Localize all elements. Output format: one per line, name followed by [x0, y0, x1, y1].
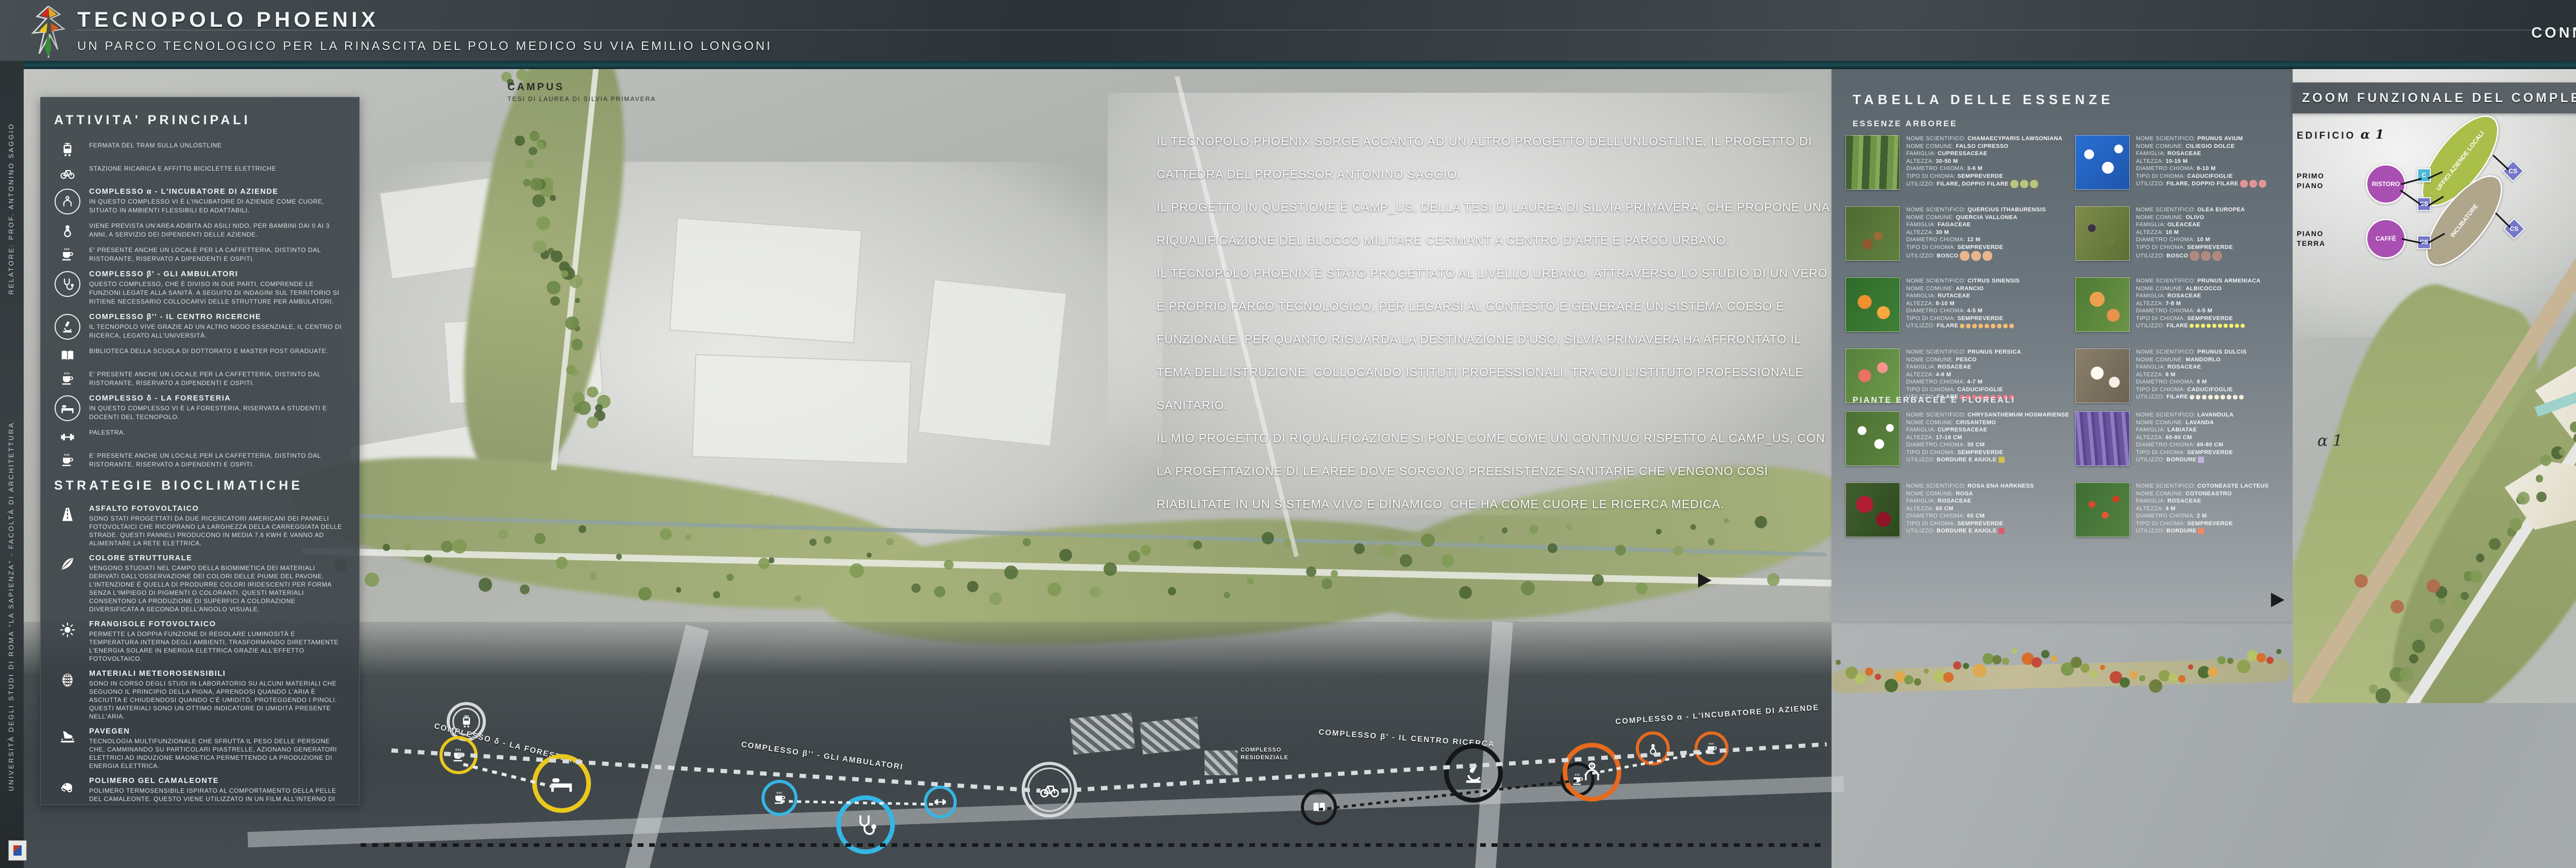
strip-tree — [2139, 675, 2145, 681]
essence-field-sci: NOME SCIENTIFICO: PRUNUS PERSICA — [1906, 348, 2021, 356]
strategy-heading: FRANGISOLE FOTOVOLTAICO — [89, 620, 346, 628]
essence-field-uti: UTILIZZO: FILARE — [2136, 322, 2261, 330]
essence-fields: NOME SCIENTIFICO: COTONEASTE LACTEUSNOME… — [2136, 482, 2268, 537]
usage-dot — [2218, 324, 2222, 328]
usage-dot — [2009, 324, 2014, 328]
plan-tree — [2540, 455, 2552, 466]
plan-tree — [2430, 619, 2444, 633]
usage-dot — [2241, 324, 2245, 328]
residential-hatch — [1070, 712, 1136, 755]
strip-tree — [2120, 677, 2130, 688]
strategy-heading: MATERIALI METEOROSENSIBILI — [89, 670, 346, 678]
essence-field-fam: FAMIGLIA: ROSACEAE — [2136, 363, 2247, 371]
essence-field-alt: ALTEZZA: 30-50 M — [1906, 158, 2062, 165]
strip-tree — [2100, 665, 2105, 670]
strategy-description: POLIMERO TERMOSENSIBILE ISPIRATO AL COMP… — [89, 787, 346, 805]
essence-fields: NOME SCIENTIFICO: CITRUS SINENSISNOME CO… — [1906, 277, 2020, 332]
campus-label-title: CAMPUS — [507, 81, 656, 93]
section-arrow-icon — [1698, 573, 1711, 588]
activity-description: E' PRESENTE ANCHE UN LOCALE PER LA CAFFE… — [89, 452, 346, 469]
usage-dot — [2207, 324, 2211, 328]
essence-field-fam: FAMIGLIA: CUPRESSACEAE — [1906, 426, 2069, 434]
strip-tree — [1963, 663, 1969, 669]
usage-dot — [2198, 457, 2204, 463]
tree — [533, 240, 546, 254]
pinecone-icon — [54, 670, 81, 688]
tree — [989, 592, 1002, 605]
usage-dot — [2259, 180, 2266, 188]
plant-photo — [1845, 411, 1900, 466]
essence-fields: NOME SCIENTIFICO: CHAMAECYPARIS LAWSONIA… — [1906, 135, 2062, 190]
essence-field-fam: FAMIGLIA: RUTACEAE — [1906, 292, 2020, 300]
essence-field-com: NOME COMUNE: OLIVO — [2136, 214, 2245, 222]
plan-tree — [2399, 667, 2413, 681]
activity-text: PALESTRA. — [89, 428, 126, 437]
activity-item: FERMATA DEL TRAM SULLA UNLOSTLINE — [54, 141, 346, 158]
strategy-heading: PAVEGEN — [89, 727, 346, 736]
plant-photo — [2075, 135, 2130, 190]
usage-dot — [2229, 324, 2233, 328]
strategy-item: ASFALTO FOTOVOLTAICOSONO STATI PROGETTAT… — [54, 505, 346, 547]
section-arrow-icon — [2271, 593, 2284, 607]
presentation-board: TECNOPOLO PHOENIX UN PARCO TECNOLOGICO P… — [0, 0, 2576, 868]
essence-field-sci: NOME SCIENTIFICO: QUERCIUS ITHABURENSIS — [1906, 206, 2046, 214]
essence-field-uti: UTILIZZO: BORDURE E AIUOLE — [1906, 456, 2069, 464]
strip-tree — [2217, 656, 2226, 664]
plan-tree — [2412, 640, 2425, 653]
residential-hatch — [1205, 750, 1238, 775]
activity-heading: COMPLESSO β'' - IL CENTRO RICERCHE — [89, 313, 346, 321]
strategy-description: VENGONO STUDIATI NEL CAMPO DELLA BIOMIME… — [89, 564, 346, 613]
strip-tree — [1904, 675, 1913, 685]
credit-relatore: RELATORE: PROF. ANTONINO SAGGIO — [7, 123, 15, 295]
usage-dot — [2249, 180, 2257, 188]
activity-item: E' PRESENTE ANCHE UN LOCALE PER LA CAFFE… — [54, 452, 346, 469]
essence-field-com: NOME COMUNE: FALSO CIPRESSO — [1906, 143, 2062, 151]
plant-photo — [1845, 348, 1900, 403]
essence-field-dia: DIAMETRO CHIOMA: 4-7 M — [1906, 378, 2021, 386]
essence-field-uti: UTILIZZO: BOSCO — [1906, 251, 2046, 261]
plan-tree — [2536, 475, 2544, 482]
essence-group-erbacee: PIANTE ERBACEE E FLOREALI — [1853, 396, 2015, 405]
essence-field-fam: FAMIGLIA: ROSACEAE — [1906, 497, 2034, 505]
header-teal-strip — [0, 61, 2576, 69]
usage-dot — [2003, 324, 2008, 328]
usage-dot — [1998, 457, 2005, 463]
essence-field-tipo: TIPO DI CHIOMA: SEMPREVERDE — [1906, 244, 2046, 252]
essence-field-sci: NOME SCIENTIFICO: PRUNUS AVIUM — [2136, 135, 2266, 143]
tree — [911, 583, 921, 593]
essence-field-tipo: TIPO DI CHIOMA: CADUCIFOGLIE — [1906, 386, 2021, 394]
activity-text: STAZIONE RICARICA E AFFITTO BICICLETTE E… — [89, 164, 276, 173]
essence-field-fam: FAMIGLIA: ROSACEAE — [2136, 150, 2266, 158]
plan-tree — [2517, 492, 2530, 505]
activity-text: COMPLESSO β'' - IL CENTRO RICERCHEIL TEC… — [89, 313, 346, 340]
usage-dot — [1982, 251, 1992, 261]
essence-fields: NOME SCIENTIFICO: ROSA ENA HARKNESSNOME … — [1906, 482, 2034, 537]
road-icon — [54, 505, 81, 523]
essence-field-alt: ALTEZZA: 60-80 CM — [2136, 434, 2233, 442]
tree — [794, 595, 801, 602]
building-roof — [692, 354, 912, 465]
tree — [1479, 535, 1485, 541]
essence-entry: NOME SCIENTIFICO: PRUNUS ARMENIACANOME C… — [2075, 277, 2298, 332]
essence-entry: NOME SCIENTIFICO: CITRUS SINENSISNOME CO… — [1845, 277, 2068, 332]
essence-field-alt: ALTEZZA: 4-8 M — [1906, 371, 2021, 379]
essence-field-sci: NOME SCIENTIFICO: CHAMAECYPARIS LAWSONIA… — [1906, 135, 2062, 143]
tree — [1321, 578, 1332, 589]
plan-red-tree — [2427, 579, 2440, 593]
usage-dot — [2201, 251, 2211, 261]
essence-field-sci: NOME SCIENTIFICO: PRUNUS DULCIS — [2136, 348, 2247, 356]
tram-icon — [54, 141, 81, 158]
zoom-banner: ZOOM FUNZIONALE DEL COMPLESSO α - L'INCU… — [2293, 82, 2576, 113]
essence-field-uti: UTILIZZO: BOSCO — [2136, 251, 2245, 261]
essence-field-fam: FAMIGLIA: ROSACEAE — [2136, 497, 2268, 505]
tree — [850, 563, 864, 578]
strategy-heading: COLORE STRUTTURALE — [89, 554, 346, 562]
intro-paragraph: IL PROGETTO IN QUESTIONE È CAMP_US, DELL… — [1157, 191, 1834, 257]
usage-dot — [2208, 395, 2213, 399]
essence-field-com: NOME COMUNE: CRISANTEMO — [1906, 419, 2069, 427]
plant-photo — [1845, 135, 1900, 190]
essence-fields: NOME SCIENTIFICO: PRUNUS DULCISNOME COMU… — [2136, 348, 2247, 403]
usage-dot — [2198, 528, 2204, 534]
plan-tree — [2409, 654, 2418, 663]
strategy-heading: POLIMERO GEL CAMALEONTE — [89, 777, 346, 785]
tree — [529, 147, 537, 155]
tree — [934, 586, 945, 597]
sun-icon — [54, 620, 81, 639]
dumbbell-icon — [934, 795, 947, 809]
strip-tree — [2129, 671, 2138, 679]
activity-heading: COMPLESSO δ - LA FORESTERIA — [89, 394, 346, 403]
credit-university: UNIVERSITÀ DEGLI STUDI DI ROMA “LA SAPIE… — [7, 422, 15, 791]
essence-grid-arboree: NOME SCIENTIFICO: CHAMAECYPARIS LAWSONIA… — [1845, 135, 2298, 403]
essence-field-fam: FAMIGLIA: LABIATAE — [2136, 426, 2233, 434]
essence-entry: NOME SCIENTIFICO: PRUNUS AVIUMNOME COMUN… — [2075, 135, 2298, 190]
usage-dot — [2227, 395, 2231, 399]
tree — [1224, 592, 1230, 598]
tree — [769, 557, 774, 563]
essence-field-tipo: TIPO DI CHIOMA: SEMPREVERDE — [2136, 520, 2268, 528]
footstep-icon — [54, 727, 81, 746]
plant-photo — [1845, 206, 1900, 261]
essence-field-com: NOME COMUNE: QUERCIA VALLONEA — [1906, 214, 2046, 222]
usage-dot — [2201, 324, 2205, 328]
essence-field-dia: DIAMETRO CHIOMA: 8-10 M — [2136, 165, 2266, 173]
essence-field-uti: UTILIZZO: FILARE, DOPPIO FILARE — [2136, 180, 2266, 188]
strategies-list: ASFALTO FOTOVOLTAICOSONO STATI PROGETTAT… — [54, 505, 346, 805]
usage-dot — [1971, 251, 1981, 261]
activity-description: QUESTO COMPLESSO, CHE È DIVISO IN DUE PA… — [89, 280, 346, 306]
incubator-icon: $ — [54, 188, 81, 214]
residential-hatch — [1140, 716, 1200, 754]
tree — [1090, 587, 1100, 597]
tree — [537, 142, 544, 149]
floor-label: PRIMO PIANO — [2297, 171, 2333, 191]
essence-field-dia: DIAMETRO CHIOMA: 60-80 CM — [2136, 441, 2233, 449]
campus-label: CAMPUS TESI DI LAUREA DI SILVIA PRIMAVER… — [507, 81, 656, 103]
essence-field-sci: NOME SCIENTIFICO: LAVANDULA — [2136, 411, 2233, 419]
strategy-description: TECNOLOGIA MULTIFUNZIONALE CHE SFRUTTA I… — [89, 737, 346, 770]
strip-tree — [2168, 673, 2178, 682]
essence-field-sci: NOME SCIENTIFICO: COTONEASTE LACTEUS — [2136, 482, 2268, 490]
tree — [589, 572, 597, 580]
essence-field-dia: DIAMETRO CHIOMA: 4-5 M — [2136, 307, 2261, 315]
essence-field-sci: NOME SCIENTIFICO: CITRUS SINENSIS — [1906, 277, 2020, 285]
tree — [1382, 544, 1395, 557]
essence-field-tipo: TIPO DI CHIOMA: SEMPREVERDE — [2136, 449, 2233, 457]
essence-fields: NOME SCIENTIFICO: QUERCIUS ITHABURENSISN… — [1906, 206, 2046, 261]
activity-description: VIENE PREVISTA UN'AREA ADIBITA AD ASILI … — [89, 222, 346, 239]
strip-tree — [1953, 661, 1961, 670]
plan-tree — [2470, 571, 2482, 582]
usage-dot — [2212, 324, 2216, 328]
usage-dot — [2010, 180, 2019, 188]
activity-text: E' PRESENTE ANCHE UN LOCALE PER LA CAFFE… — [89, 246, 346, 263]
essence-field-alt: ALTEZZA: 7-8 M — [2136, 300, 2261, 308]
strategy-description: SONO IN CORSO DEGLI STUDI IN LABORATORIO… — [89, 679, 346, 721]
plan-tree — [2488, 553, 2498, 562]
essence-group-arboree: ESSENZE ARBOREE — [1853, 120, 1958, 129]
tree — [824, 536, 832, 544]
essence-field-fam: FAMIGLIA: ROSACEAE — [2136, 292, 2261, 300]
floor-label: PIANO TERRA — [2297, 229, 2333, 248]
bed-icon — [54, 394, 81, 421]
strip-tree — [2227, 658, 2233, 664]
usage-dot — [1966, 324, 1971, 328]
essence-fields: NOME SCIENTIFICO: PRUNUS PERSICANOME COM… — [1906, 348, 2021, 403]
essence-field-tipo: TIPO DI CHIOMA: SEMPREVERDE — [2136, 244, 2245, 252]
strategy-description: PERMETTE LA DOPPIA FUNZIONE DI REGOLARE … — [89, 630, 346, 663]
essence-field-alt: ALTEZZA: 17-18 CM — [1906, 434, 2069, 442]
tree — [520, 585, 530, 594]
strategy-item: COLORE STRUTTURALEVENGONO STUDIATI NEL C… — [54, 554, 346, 613]
activity-heading: COMPLESSO β' - GLI AMBULATORI — [89, 270, 346, 278]
activity-text: COMPLESSO α - L'INCUBATORE DI AZIENDEIN … — [89, 188, 346, 215]
strip-tree — [1992, 655, 2002, 664]
usage-dot — [1985, 324, 1989, 328]
tree — [1636, 582, 1648, 594]
strip-tree — [2178, 675, 2185, 682]
essence-field-dia: DIAMETRO CHIOMA: 12 M — [1906, 236, 2046, 244]
essence-field-com: NOME COMUNE: CILIEGIO DOLCE — [2136, 143, 2266, 151]
plan-tree — [2536, 492, 2547, 502]
tree — [565, 316, 579, 330]
strip-tree — [2031, 657, 2042, 667]
tree — [1521, 581, 1535, 595]
activity-text: VIENE PREVISTA UN'AREA ADIBITA AD ASILI … — [89, 222, 346, 239]
essence-entry: NOME SCIENTIFICO: QUERCIUS ITHABURENSISN… — [1845, 206, 2068, 261]
sheet-title: CONNESSIONE E RIQUALIFICAZIONE: IL PARCO — [2531, 25, 2576, 42]
usage-dot — [2240, 180, 2248, 188]
essence-entry: NOME SCIENTIFICO: ROSA ENA HARKNESSNOME … — [1845, 482, 2068, 537]
plant-photo — [1845, 482, 1900, 537]
tree — [1421, 533, 1435, 547]
essence-field-tipo: TIPO DI CHIOMA: CADUCIFOGLIE — [2136, 386, 2247, 394]
plan-tree — [2476, 554, 2485, 562]
usage-dot — [2020, 180, 2028, 188]
stethoscope-icon — [853, 812, 878, 837]
essence-entry: NOME SCIENTIFICO: CHAMAECYPARIS LAWSONIA… — [1845, 135, 2068, 190]
tree — [809, 539, 817, 546]
essence-field-tipo: TIPO DI CHIOMA: SEMPREVERDE — [2136, 315, 2261, 323]
essence-fields: NOME SCIENTIFICO: OLEA EUROPEANOME COMUN… — [2136, 206, 2245, 261]
tree — [587, 387, 598, 397]
stethoscope-icon — [54, 270, 81, 297]
linear-park-plan — [1832, 639, 2290, 711]
essence-field-alt: ALTEZZA: 8-10 M — [1906, 300, 2020, 308]
tree — [547, 281, 561, 295]
usage-dot — [2190, 251, 2199, 261]
activity-heading: COMPLESSO α - L'INCUBATORE DI AZIENDE — [89, 188, 346, 196]
tree — [676, 587, 682, 593]
tree — [1767, 573, 1780, 586]
tree — [525, 160, 534, 169]
essence-field-sci: NOME SCIENTIFICO: PRUNUS ARMENIACA — [2136, 277, 2261, 285]
tree — [566, 365, 576, 375]
plant-photo — [1845, 277, 1900, 332]
essence-field-uti: UTILIZZO: BORDURE — [2136, 527, 2268, 535]
essence-field-dia: DIAMETRO CHIOMA: 8 M — [2136, 378, 2247, 386]
tree — [638, 587, 652, 600]
essence-field-fam: FAMIGLIA: ROSACEAE — [1906, 363, 2021, 371]
essence-field-fam: FAMIGLIA: CUPRESSACEAE — [1906, 150, 2062, 158]
essence-field-alt: ALTEZZA: 10-15 M — [2136, 158, 2266, 165]
tree — [595, 404, 603, 412]
essence-fields: NOME SCIENTIFICO: LAVANDULANOME COMUNE: … — [2136, 411, 2233, 466]
usage-dot — [2202, 395, 2207, 399]
microscope-icon — [54, 313, 81, 340]
board-subtitle: UN PARCO TECNOLOGICO PER LA RINASCITA DE… — [77, 39, 772, 54]
essence-entry: NOME SCIENTIFICO: PRUNUS DULCISNOME COMU… — [2075, 348, 2298, 403]
essence-field-fam: FAMIGLIA: FAGACEAE — [1906, 221, 2046, 229]
essence-field-tipo: TIPO DI CHIOMA: SEMPREVERDE — [1906, 449, 2069, 457]
essence-field-dia: DIAMETRO CHIOMA: 60 CM — [1906, 512, 2034, 520]
activity-item: PALESTRA. — [54, 428, 346, 445]
activity-text: COMPLESSO δ - LA FORESTERIAIN QUESTO COM… — [89, 394, 346, 422]
campus-label-sub: TESI DI LAUREA DI SILVIA PRIMAVERA — [507, 95, 656, 103]
essence-entry: NOME SCIENTIFICO: CHRYSANTHEMUM HOSMARIE… — [1845, 411, 2068, 466]
svg-text:$: $ — [1590, 764, 1594, 770]
essence-field-com: NOME COMUNE: LAVANDA — [2136, 419, 2233, 427]
essence-field-alt: ALTEZZA: 8 M — [2136, 371, 2247, 379]
tree — [536, 216, 550, 230]
strip-tree — [2090, 671, 2097, 678]
essence-entry: NOME SCIENTIFICO: COTONEASTE LACTEUSNOME… — [2075, 482, 2298, 537]
essence-field-uti: UTILIZZO: BORDURE — [2136, 456, 2233, 464]
essence-entry: NOME SCIENTIFICO: LAVANDULANOME COMUNE: … — [2075, 411, 2298, 466]
tree — [365, 573, 379, 587]
diagram-node-caffe: CAFFÈ — [2366, 219, 2406, 259]
tree — [587, 416, 599, 428]
header-rule — [76, 30, 2576, 30]
essence-field-tipo: TIPO DI CHIOMA: SEMPREVERDE — [1906, 520, 2034, 528]
essence-field-uti: UTILIZZO: BORDURE E AIUOLE — [1906, 527, 2034, 535]
bicycle-icon — [54, 164, 81, 181]
tree — [523, 179, 531, 187]
essence-field-alt: ALTEZZA: 4 M — [2136, 505, 2268, 513]
intro-paragraph: IL TECNOPOLO PHOENIX È STATO PROGETTATO … — [1157, 257, 1834, 422]
tree — [551, 251, 562, 262]
essence-field-uti: UTILIZZO: FILARE — [1906, 322, 2020, 330]
strip-tree — [1914, 678, 1921, 686]
tree — [530, 131, 540, 141]
coffee-icon — [54, 246, 81, 262]
essence-field-com: NOME COMUNE: ARANCIO — [1906, 285, 2020, 293]
essence-field-sci: NOME SCIENTIFICO: OLEA EUROPEA — [2136, 206, 2245, 214]
usage-dot — [2235, 324, 2239, 328]
essence-field-tipo: TIPO DI CHIOMA: CADUCIFOGLIE — [2136, 173, 2266, 180]
intro-paragraph: IL TECNOPOLO PHOENIX SORGE ACCANTO AD UN… — [1157, 125, 1834, 191]
tree — [758, 558, 770, 569]
usage-dot — [1960, 251, 1970, 261]
essence-field-dia: DIAMETRO CHIOMA: 2 M — [2136, 512, 2268, 520]
strip-tree — [2276, 649, 2281, 654]
feather-icon — [54, 554, 81, 573]
diagram-node-c: C — [2417, 169, 2431, 182]
essence-field-tipo: TIPO DI CHIOMA: SEMPREVERDE — [1906, 173, 2062, 180]
plant-photo — [2075, 277, 2130, 332]
intro-paragraph: IL MIO PROGETTO DI RIQUALIFICAZIONE SI P… — [1157, 422, 1834, 521]
cluster-circle — [924, 786, 957, 819]
tree — [530, 178, 543, 190]
book-icon — [54, 347, 81, 363]
activity-description: E' PRESENTE ANCHE UN LOCALE PER LA CAFFE… — [89, 370, 346, 388]
tree — [886, 538, 893, 545]
essence-grid-erbacee: NOME SCIENTIFICO: CHRYSANTHEMUM HOSMARIE… — [1845, 411, 2298, 537]
activity-item: VIENE PREVISTA UN'AREA ADIBITA AD ASILI … — [54, 222, 346, 239]
strip-tree — [2266, 657, 2274, 664]
strip-tree — [2188, 664, 2193, 670]
essence-title: TABELLA DELLE ESSENZE — [1853, 92, 2114, 108]
tree — [1502, 527, 1507, 533]
plan-red-tree — [2354, 574, 2368, 588]
strip-tree — [2002, 658, 2009, 665]
essence-field-dia: DIAMETRO CHIOMA: 3-6 M — [1906, 165, 2062, 173]
activity-description: E' PRESENTE ANCHE UN LOCALE PER LA CAFFE… — [89, 246, 346, 263]
tree — [713, 591, 720, 598]
tree — [1247, 578, 1253, 585]
tree — [1059, 549, 1072, 561]
footer-logo — [8, 840, 27, 861]
essence-field-uti: UTILIZZO: FILARE — [2136, 393, 2247, 401]
cluster-circle — [761, 780, 798, 816]
building-roof — [918, 279, 1067, 447]
credits-strip: RELATORE: PROF. ANTONINO SAGGIO UNIVERSI… — [0, 61, 24, 868]
tree — [441, 541, 453, 553]
essence-field-tipo: TIPO DI CHIOMA: SEMPREVERDE — [1906, 315, 2020, 323]
dumbbell-icon — [54, 428, 81, 445]
plan-tree — [2461, 592, 2469, 600]
diagram-node-ristoro: RISTORO — [2366, 164, 2406, 204]
tree — [1354, 543, 1365, 554]
activity-item: COMPLESSO δ - LA FORESTERIAIN QUESTO COM… — [54, 394, 346, 422]
coffee-icon — [54, 452, 81, 468]
tree — [404, 543, 411, 550]
zoom-banner-title: ZOOM FUNZIONALE DEL COMPLESSO α - L'INCU… — [2293, 91, 2576, 106]
edificio-title: EDIFICIO α 1 — [2297, 127, 2384, 142]
usage-dot — [2233, 395, 2238, 399]
coffee-icon — [54, 370, 81, 387]
tree — [616, 554, 622, 559]
activity-text: E' PRESENTE ANCHE UN LOCALE PER LA CAFFE… — [89, 370, 346, 388]
essence-field-alt: ALTEZZA: 60 CM — [1906, 505, 2034, 513]
essence-field-com: NOME COMUNE: ROSA — [1906, 490, 2034, 498]
activity-text: E' PRESENTE ANCHE UN LOCALE PER LA CAFFE… — [89, 452, 346, 469]
strategy-item: FRANGISOLE FOTOVOLTAICOPERMETTE LA DOPPI… — [54, 620, 346, 663]
